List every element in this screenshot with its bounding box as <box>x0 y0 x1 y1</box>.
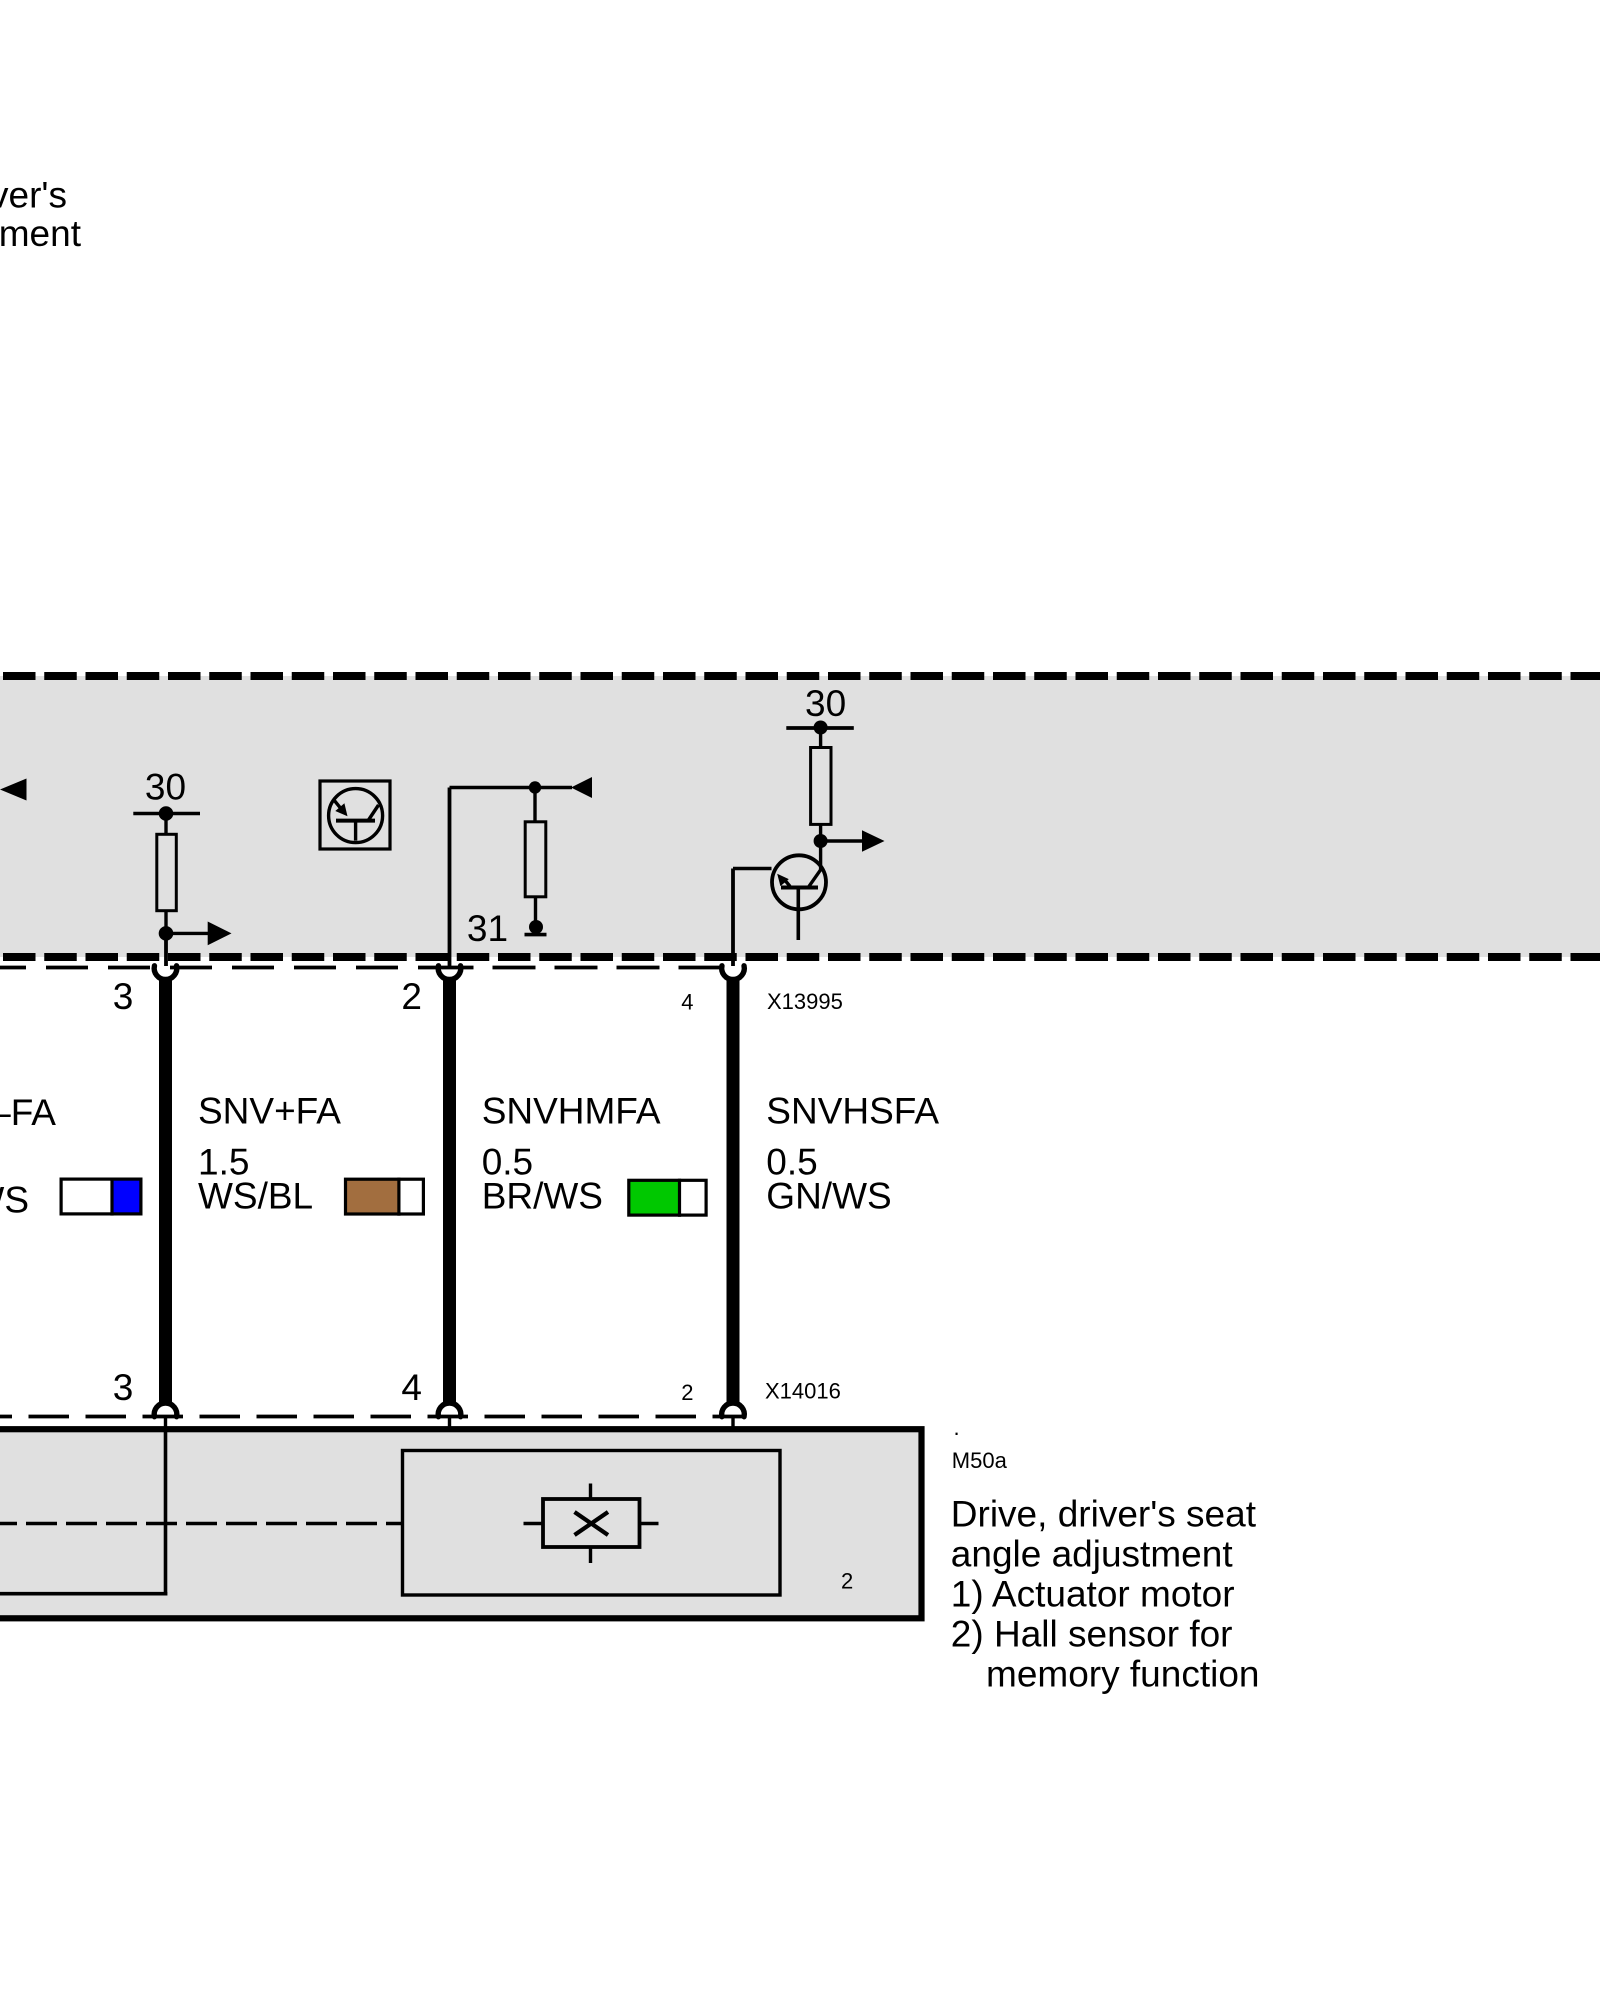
svg-text:2: 2 <box>841 1569 853 1594</box>
svg-text:GN/WS: GN/WS <box>766 1176 891 1217</box>
svg-text:1) Actuator motor: 1) Actuator motor <box>951 1574 1235 1615</box>
svg-text:WS/BL: WS/BL <box>198 1176 313 1217</box>
svg-text:SNVHSFA: SNVHSFA <box>766 1091 939 1132</box>
svg-text:SNV–FA: SNV–FA <box>0 1092 56 1133</box>
svg-text:31: 31 <box>467 908 508 949</box>
svg-text:.: . <box>954 1415 960 1440</box>
svg-text:2: 2 <box>681 1380 693 1405</box>
svg-text:4: 4 <box>401 1367 422 1408</box>
svg-text:SNVHMFA: SNVHMFA <box>482 1091 661 1132</box>
svg-text:X13995: X13995 <box>767 989 843 1014</box>
svg-text:Drive, driver's seat: Drive, driver's seat <box>951 1494 1257 1535</box>
svg-text:30: 30 <box>805 683 846 724</box>
svg-text:2: 2 <box>401 976 422 1017</box>
svg-text:3: 3 <box>113 976 134 1017</box>
svg-text:3: 3 <box>113 1367 134 1408</box>
svg-text:X14016: X14016 <box>765 1379 841 1404</box>
svg-text:adjustment: adjustment <box>0 213 82 254</box>
svg-text:driver's: driver's <box>0 175 67 216</box>
svg-text:BL/WS: BL/WS <box>0 1180 29 1221</box>
svg-text:30: 30 <box>145 767 186 808</box>
svg-text:angle adjustment: angle adjustment <box>951 1534 1234 1575</box>
svg-text:SNV+FA: SNV+FA <box>198 1091 341 1132</box>
svg-text:memory function: memory function <box>986 1654 1260 1695</box>
svg-text:4: 4 <box>681 990 693 1015</box>
svg-text:M50a: M50a <box>952 1448 1008 1473</box>
svg-text:2) Hall sensor for: 2) Hall sensor for <box>951 1614 1233 1655</box>
svg-text:BR/WS: BR/WS <box>482 1176 603 1217</box>
